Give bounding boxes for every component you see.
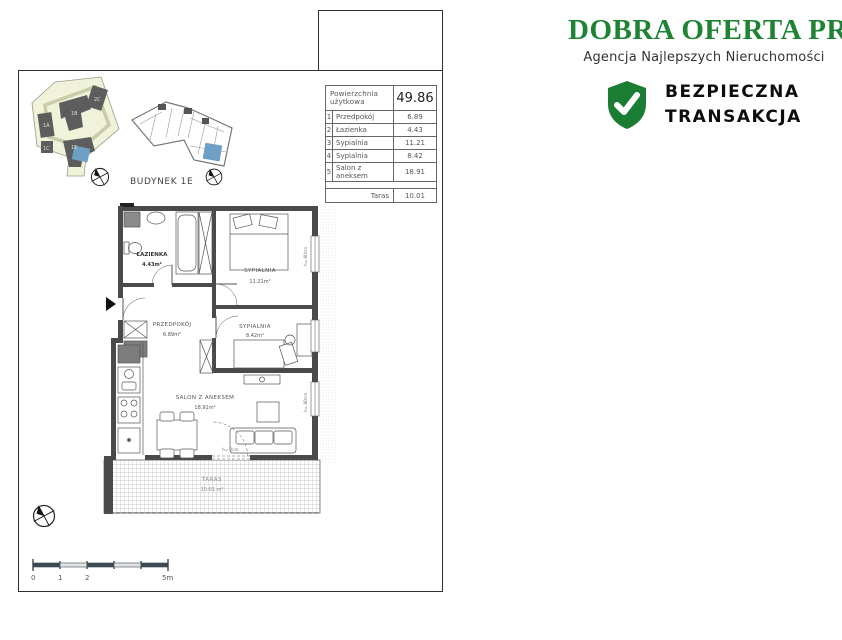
site-label-1a: 1A [43,123,50,129]
scale-bar: 0 1 2 5m [28,558,178,584]
total-area-value: 49.86 [394,86,437,111]
safe-transaction-badge: BEZPIECZNA TRANSAKCJA [604,80,802,130]
floor-plan: TARAS 10.01 m² [100,200,345,535]
window3-height-label: h= 80cm [303,393,308,412]
room-label-bathroom: ŁAZIENKA [136,252,168,258]
scale-label-0: 0 [31,574,35,582]
brand-tagline: Agencja Najlepszych Nieruchomości [568,50,840,65]
terrace: TARAS 10.01 m² [104,456,320,514]
building-highlight-unit [203,143,223,162]
bathroom [124,212,212,285]
room-label-bedroom2: SYPIALNIA [239,324,271,330]
badge-line1: BEZPIECZNA [665,80,802,105]
table-row: 4 Sypialnia 8.42 [326,150,437,163]
row-number: 3 [326,137,333,150]
brand-logo: DOBRA OFERTA PRO Agencja Najlepszych Nie… [568,14,840,65]
row-label: Przedpokój [333,111,394,124]
title-box [318,10,443,72]
site-label-1e: 1E [71,145,77,151]
page: DOBRA OFERTA PRO Agencja Najlepszych Nie… [0,0,842,640]
building-compass-icon [203,166,225,188]
site-compass-icon [88,165,112,189]
table-row: 5 Salon z aneksem 18.91 [326,163,437,182]
room-label-bedroom1: SYPIALNIA [244,268,276,274]
terrace-value: 10.01 [394,189,437,203]
terrace-door-height-label: h= 0cm [222,447,239,452]
row-label: Sypialnia [333,137,394,150]
room-area-taras: 10.01 m² [201,487,224,493]
kitchen [118,343,143,455]
row-number: 5 [326,163,333,182]
room-label-taras: TARAS [201,477,222,483]
scale-label-5m: 5m [162,574,173,582]
room-area-bedroom2: 8.42m² [246,333,264,339]
row-value: 8.42 [394,150,437,163]
site-label-1b: 1B [71,111,78,117]
site-label-1c: 1C [43,146,50,152]
row-value: 11.21 [394,137,437,150]
room-area-bedroom1: 11.21m² [249,279,270,285]
scale-label-2: 2 [85,574,89,582]
row-value: 4.43 [394,124,437,137]
row-number: 4 [326,150,333,163]
row-value: 6.89 [394,111,437,124]
badge-text: BEZPIECZNA TRANSAKCJA [665,80,802,130]
exterior-texture [320,206,337,464]
table-row: 2 Łazienka 4.43 [326,124,437,137]
row-number: 1 [326,111,333,124]
building-plan-thumbnail [128,88,244,183]
row-value: 18.91 [394,163,437,182]
bedroom-1 [216,214,288,305]
room-area-living: 18.91m² [194,405,215,411]
row-number: 2 [326,124,333,137]
room-area-bathroom: 4.43m² [142,262,162,268]
table-row: 3 Sypialnia 11.21 [326,137,437,150]
room-area-hall: 6.89m² [163,332,181,338]
area-table-header: Powierzchnia użytkowa 49.86 [326,86,437,111]
entry-door [106,297,145,320]
row-label: Sypialnia [333,150,394,163]
scale-label-1: 1 [58,574,62,582]
row-label: Łazienka [333,124,394,137]
shield-check-icon [604,80,650,130]
window1-height-label: h= 80cm [303,247,308,266]
site-label-2c: 2C [94,97,101,103]
area-table-header-label: Powierzchnia użytkowa [326,86,394,111]
table-empty-row [326,182,437,189]
badge-line2: TRANSAKCJA [665,105,802,130]
row-label: Salon z aneksem [333,163,394,182]
brand-name: DOBRA OFERTA PRO [568,14,840,47]
room-label-hall: PRZEDPOKÓJ [153,321,192,328]
area-table: Powierzchnia użytkowa 49.86 1 Przedpokój… [325,85,437,203]
plan-compass-icon [30,502,58,530]
table-row: 1 Przedpokój 6.89 [326,111,437,124]
building-label: BUDYNEK 1E [130,177,200,187]
room-label-living: SALON Z ANEKSEM [176,395,235,401]
